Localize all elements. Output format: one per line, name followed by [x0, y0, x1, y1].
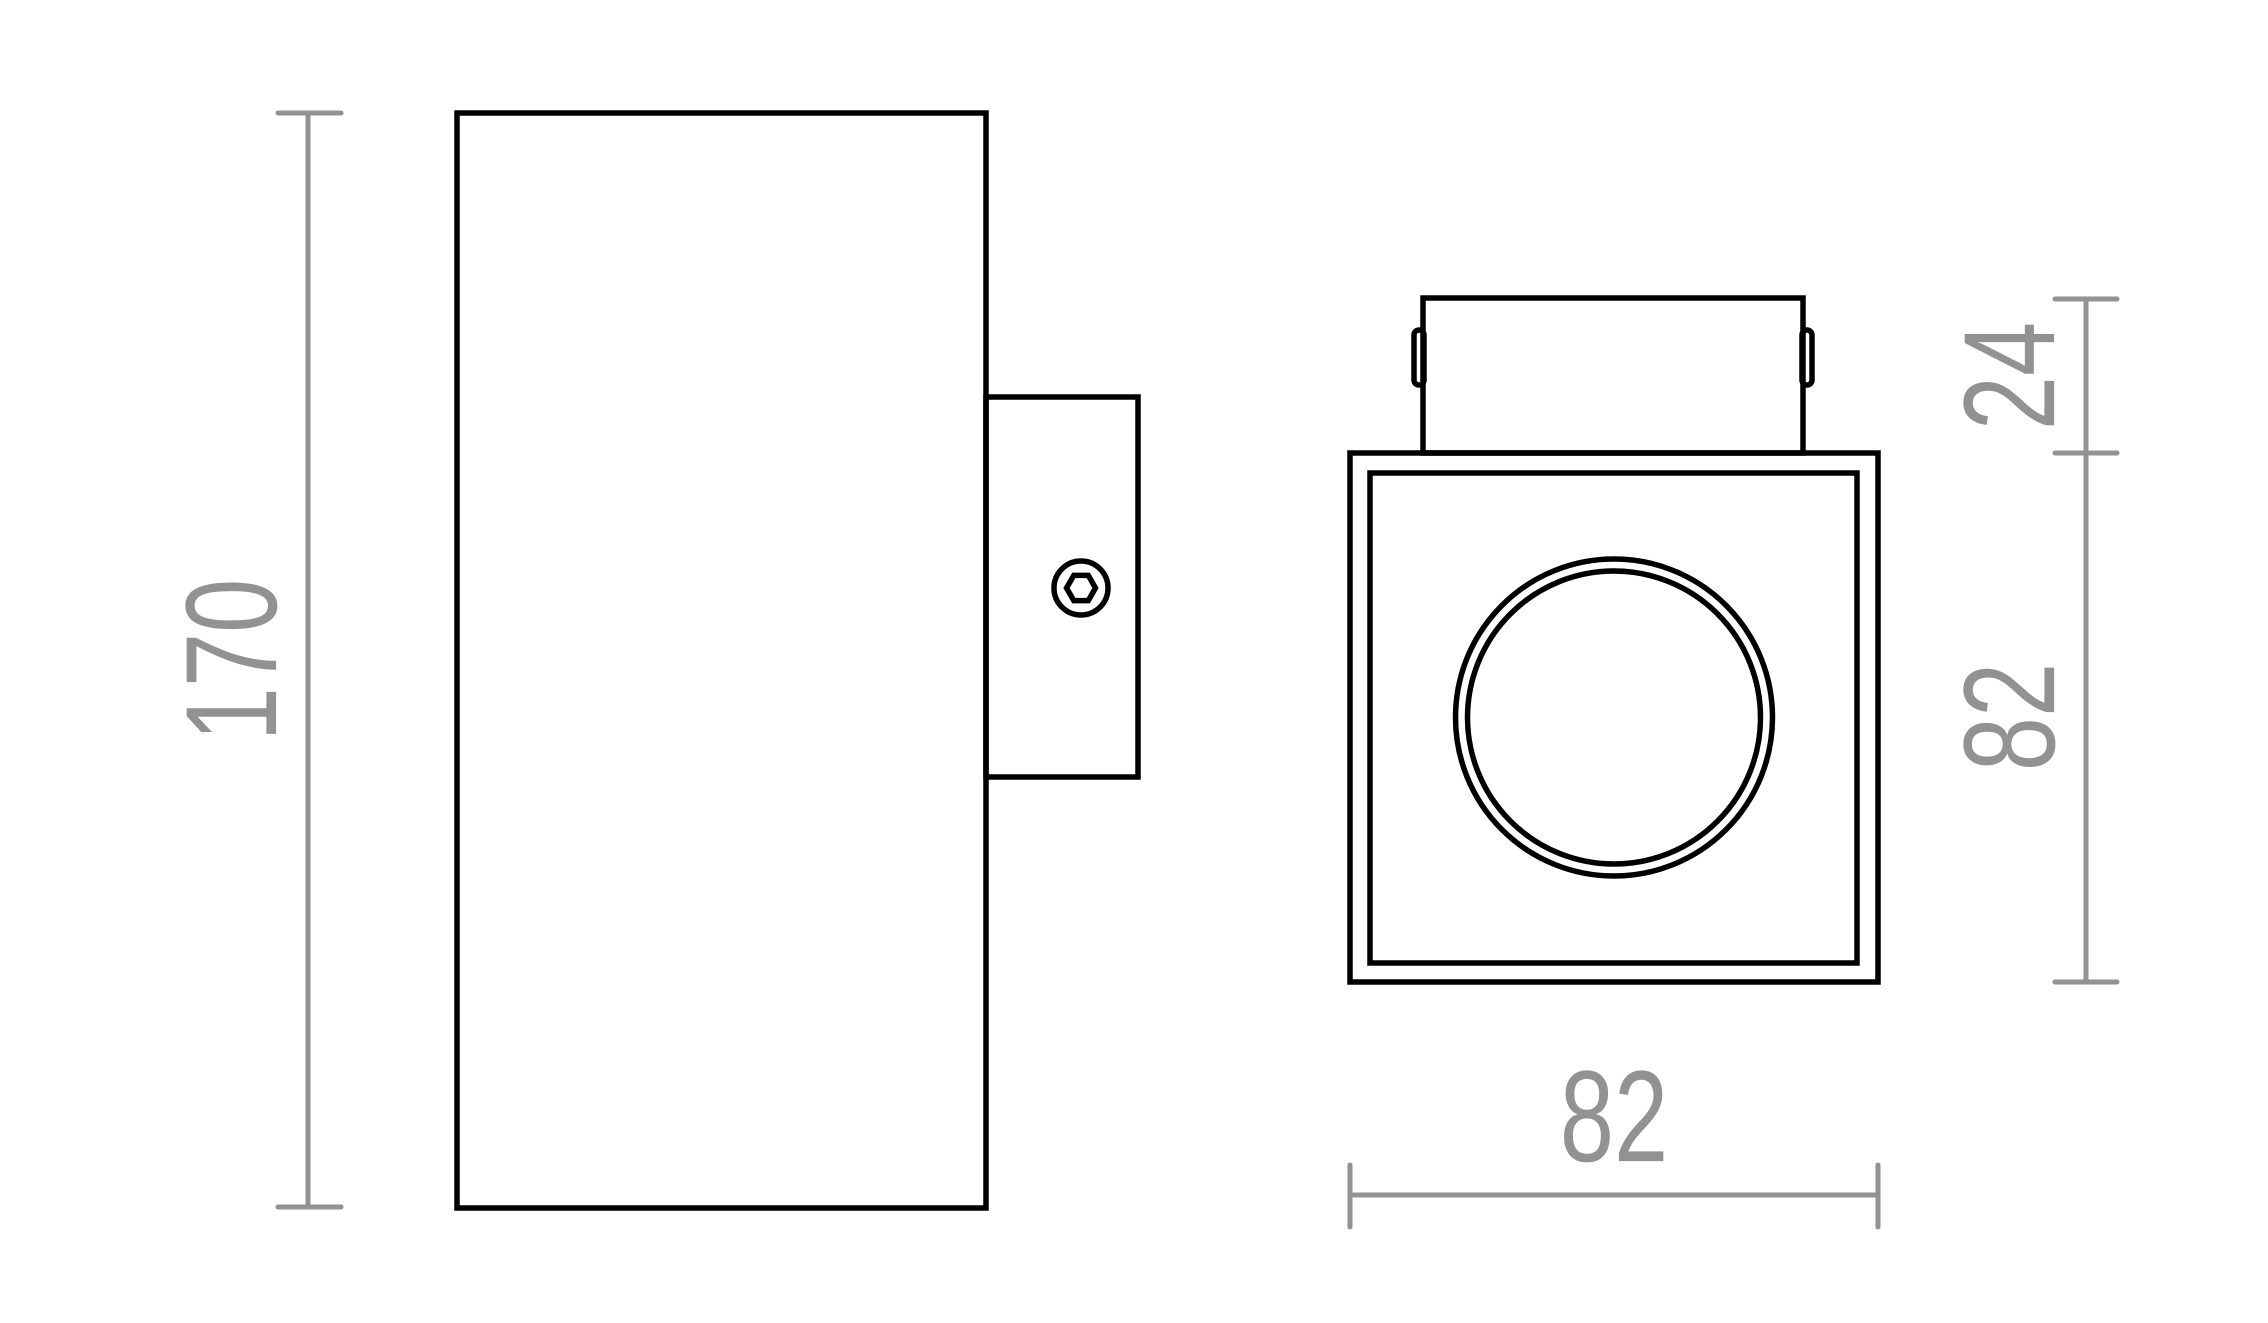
screw-hex-socket-icon — [1067, 575, 1096, 600]
dim-label-face-width: 82 — [1560, 1045, 1668, 1190]
side-view-mounting-bracket — [986, 397, 1138, 777]
fixture-dimension-drawing: 170 24 82 82 — [0, 0, 2268, 1323]
front-view-inner-face — [1370, 473, 1857, 963]
lens-inner-ring — [1468, 571, 1761, 864]
dim-label-bracket-depth: 24 — [1938, 322, 2083, 430]
side-view-body — [457, 113, 986, 1208]
dimension-lines — [278, 113, 2117, 1227]
dim-label-face-height: 82 — [1938, 663, 2083, 771]
dimension-drawing-canvas: 170 24 82 82 — [0, 0, 2268, 1323]
dim-label-body-height: 170 — [160, 579, 305, 742]
screw-head-icon — [1054, 561, 1108, 615]
front-view-top-bracket — [1423, 298, 1803, 453]
lens-outer-ring — [1456, 559, 1773, 876]
front-view-outer-frame — [1350, 453, 1878, 982]
